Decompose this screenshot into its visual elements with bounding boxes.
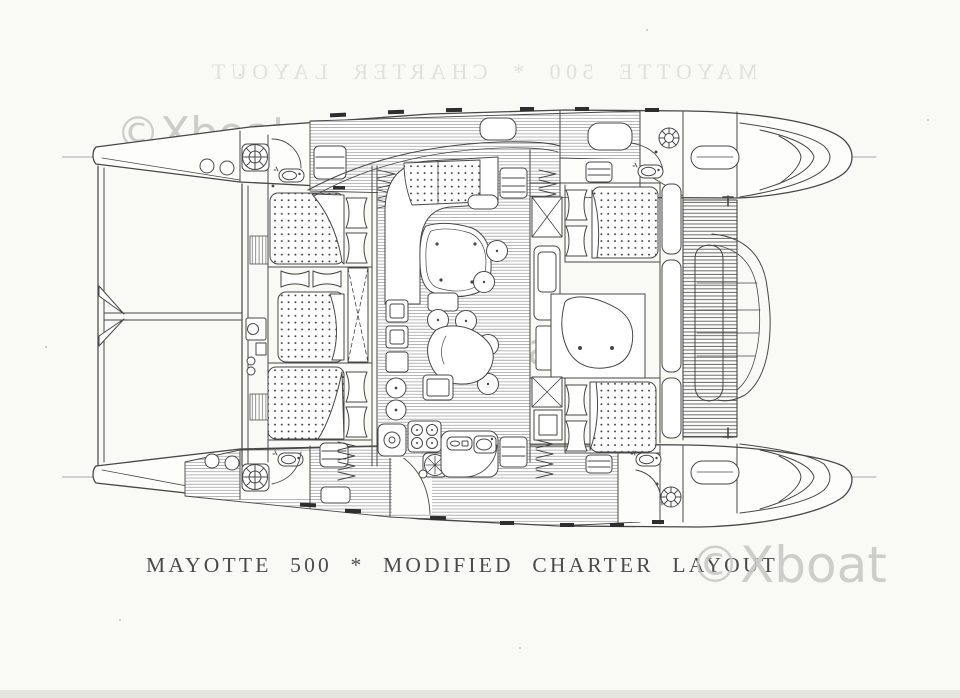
deck-hatch-icon [243,145,268,170]
four-burner-stove [408,421,441,452]
pillow-icon [346,372,367,402]
ghost-title-text: MAYOTTE 500 * CHARTER LAYOUT [206,59,757,84]
pillow-icon [346,233,367,263]
pillow-icon [566,385,587,415]
anchor-windlass [246,318,266,375]
pillow-icon [346,407,367,437]
foredeck-hatch [220,161,234,175]
starboard-cabins [530,150,683,473]
pillow-icon [346,198,367,228]
companionway-steps [586,162,612,182]
double-berth [532,377,656,452]
bow-trampolines [98,166,268,466]
shower-tray [551,294,645,378]
deck-hatch-icon [243,465,268,490]
pillow-icon [281,271,309,287]
martingale-bracket [99,319,124,346]
pillow-icon [566,421,587,451]
stern-winch-icon [659,128,679,148]
aft-deck [683,196,770,438]
watermark-bottom-right: ©Xboat [690,536,887,594]
ghost-title: MAYOTTE 500 * CHARTER LAYOUT [206,59,757,84]
pillow-icon [566,190,587,220]
foredeck-hatch [200,159,214,173]
double-berth [268,367,367,439]
double-berth [278,268,368,362]
pillow-icon [313,271,341,287]
martingale-bracket [99,286,124,314]
galley-counter [441,431,498,477]
double-berth [270,193,367,264]
catamaran-deck-plan: MAYOTTE 500 * CHARTER LAYOUT ©Xboat ©Xbo… [0,0,960,698]
aft-deck-grating [683,200,737,437]
liferaft-capsule [691,146,739,169]
plan-linework [62,107,876,527]
aft-windows [662,184,681,438]
stern-winch-icon [661,487,681,507]
liferaft-capsule [691,461,739,484]
pillow-icon [566,226,587,256]
plan-title: MAYOTTE 500 * MODIFIED CHARTER LAYOUT [146,553,778,577]
scanned-plan-page: MAYOTTE 500 * CHARTER LAYOUT ©Xboat ©Xbo… [0,0,960,698]
port-cabins [268,166,377,480]
companionway-steps [586,455,612,473]
